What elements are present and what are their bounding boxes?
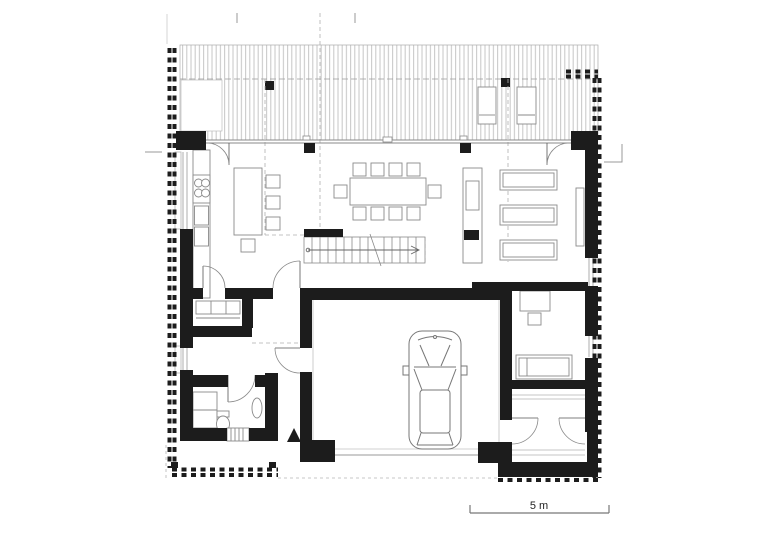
wall-segment bbox=[255, 375, 278, 387]
bar-stool bbox=[266, 217, 280, 230]
wall-segment bbox=[500, 300, 512, 420]
dining-chair bbox=[407, 207, 420, 220]
bar-stool bbox=[266, 196, 280, 209]
kitchen-island bbox=[234, 168, 262, 235]
wall-segment bbox=[242, 288, 253, 328]
terrace-clear-area bbox=[181, 80, 222, 131]
sun-lounger bbox=[478, 87, 496, 124]
car bbox=[403, 331, 467, 449]
wall-segment bbox=[300, 440, 335, 462]
bar-stool bbox=[241, 239, 255, 252]
wall-segment bbox=[180, 229, 193, 298]
section-mark-right bbox=[604, 144, 622, 162]
wall-segment bbox=[478, 442, 512, 463]
dining-chair bbox=[428, 185, 441, 198]
facade-mullion bbox=[460, 143, 471, 153]
dining-chair bbox=[334, 185, 347, 198]
courtyard bbox=[313, 300, 499, 455]
facade-mullion bbox=[304, 143, 315, 153]
wall-segment bbox=[300, 300, 312, 348]
car-roof bbox=[420, 390, 450, 433]
sofa-cushion bbox=[503, 208, 554, 222]
boundary-post bbox=[171, 462, 178, 468]
window-sill bbox=[175, 346, 181, 373]
fireplace-firebox bbox=[464, 230, 479, 240]
hall-door-2 bbox=[273, 261, 300, 288]
entry-door-right bbox=[559, 418, 585, 444]
sofa-cushion bbox=[503, 173, 554, 187]
dining-chair bbox=[371, 207, 384, 220]
dining-chair bbox=[407, 163, 420, 176]
floor-plan-canvas: 5 m bbox=[0, 0, 782, 553]
scale-bar: 5 m bbox=[470, 500, 609, 513]
car-mirror bbox=[461, 366, 467, 375]
sun-lounger bbox=[517, 87, 536, 124]
facade-fitting bbox=[303, 136, 310, 140]
wall-segment bbox=[176, 131, 206, 150]
boundary-post bbox=[269, 462, 276, 468]
bar-stool bbox=[266, 175, 280, 188]
sofa-cushion bbox=[503, 243, 554, 257]
wall-segment bbox=[503, 380, 588, 389]
dining-chair bbox=[371, 163, 384, 176]
wall-segment bbox=[180, 370, 193, 430]
wall-segment bbox=[193, 288, 203, 299]
terrace-deck bbox=[180, 45, 598, 140]
desk-chair bbox=[528, 313, 541, 325]
courtyard-door bbox=[275, 348, 300, 373]
facade-fitting bbox=[460, 136, 467, 140]
daybed-mattress bbox=[519, 358, 569, 376]
dining-chair bbox=[389, 207, 402, 220]
kitchen-cabinet bbox=[195, 227, 209, 246]
wall-segment bbox=[193, 326, 252, 337]
wall-segment bbox=[300, 372, 312, 442]
wall-shelf bbox=[576, 188, 584, 246]
floor-plan-page: 5 m bbox=[0, 0, 782, 553]
cooktop-burner bbox=[202, 189, 210, 197]
washbasin bbox=[252, 398, 262, 418]
wall-segment bbox=[472, 282, 588, 291]
stair-handrail-wall bbox=[304, 229, 343, 237]
entry-door-left bbox=[512, 418, 538, 444]
dining-chair bbox=[389, 163, 402, 176]
wall-segment bbox=[587, 430, 598, 462]
car-antenna bbox=[434, 336, 437, 339]
fireplace-inner bbox=[466, 181, 479, 210]
wall-segment bbox=[193, 375, 228, 387]
kitchen-cabinet bbox=[195, 206, 209, 225]
terrace-column bbox=[501, 78, 510, 87]
sliding-door-pull bbox=[383, 137, 392, 142]
wall-segment bbox=[249, 428, 278, 441]
dining-chair bbox=[353, 207, 366, 220]
dining-chair bbox=[353, 163, 366, 176]
wall-segment bbox=[180, 298, 193, 348]
dining-table bbox=[350, 178, 426, 205]
scale-label: 5 m bbox=[530, 500, 548, 512]
staircase bbox=[304, 234, 425, 266]
threshold-strip bbox=[227, 428, 249, 441]
facade-door-right bbox=[547, 143, 569, 165]
car-mirror bbox=[403, 366, 409, 375]
wall-segment bbox=[180, 428, 227, 441]
bathroom-door bbox=[228, 375, 255, 402]
entry-threshold-lines bbox=[505, 395, 588, 455]
closet-shelves bbox=[196, 301, 240, 314]
wall-segment bbox=[498, 462, 598, 477]
desk bbox=[520, 291, 550, 311]
terrace-column bbox=[265, 81, 274, 90]
cooktop-burner bbox=[202, 179, 210, 187]
entrance-triangle-marker bbox=[287, 428, 301, 442]
